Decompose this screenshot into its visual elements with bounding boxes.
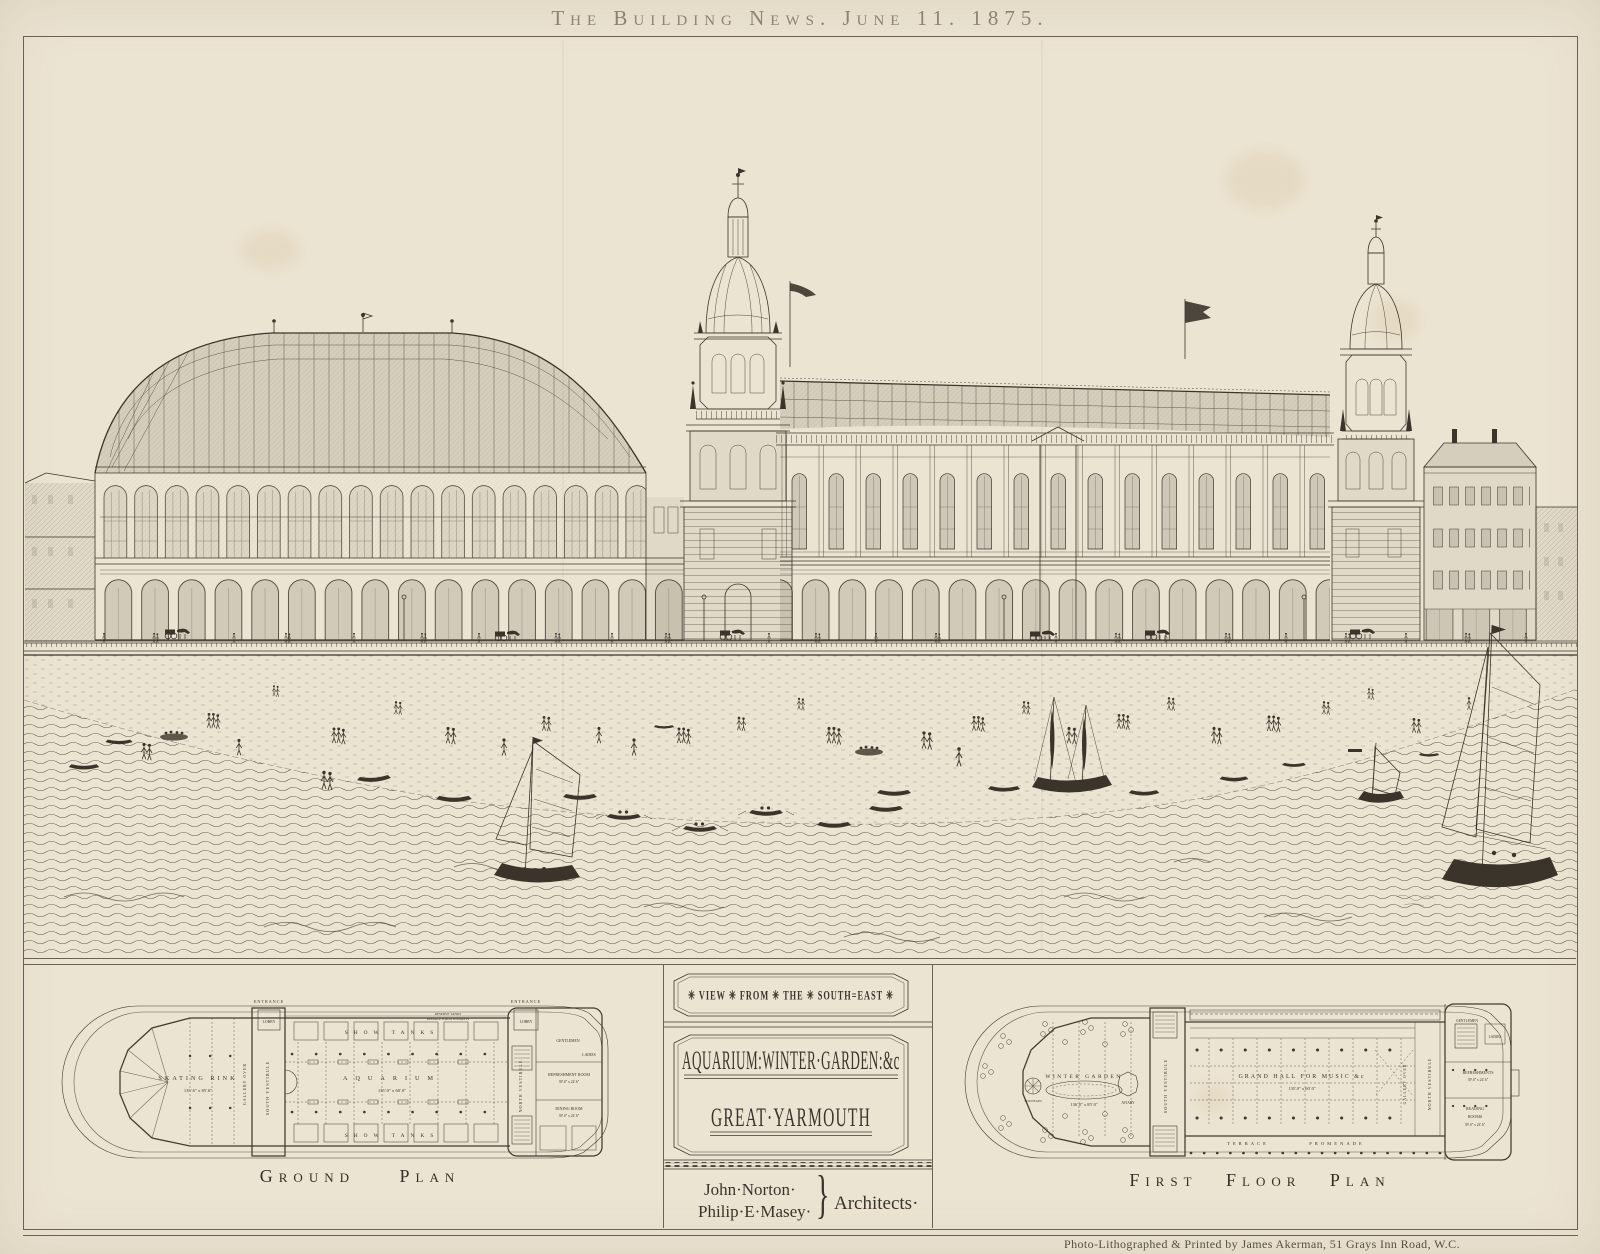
- svg-text:READING: READING: [1466, 1106, 1484, 1111]
- cartouche-right-rule: [932, 964, 933, 1228]
- main-hall: [776, 299, 1334, 640]
- svg-text:PASSAGE FOR ATTENDANTS: PASSAGE FOR ATTENDANTS: [427, 1017, 469, 1021]
- svg-text:39'.0" x 24'.6": 39'.0" x 24'.6": [559, 1080, 580, 1084]
- svg-text:REFRESHMENT ROOM: REFRESHMENT ROOM: [548, 1072, 590, 1077]
- svg-text:SOUTH VESTIBULE: SOUTH VESTIBULE: [265, 1061, 270, 1116]
- svg-text:ENTRANCE: ENTRANCE: [254, 999, 284, 1004]
- ground-plan-caption: Ground Plan: [230, 1166, 490, 1187]
- title-line1: AQUARIUM:WINTER·GARDEN:&c: [682, 1046, 900, 1075]
- svg-text:RESERVE TANKS: RESERVE TANKS: [435, 1012, 462, 1016]
- ground-plan-drawing: ENTRANCE ENTRANCE LOBBY LOBBY SKATING RI…: [40, 966, 620, 1171]
- distant-houses-left: [25, 473, 95, 641]
- svg-text:LADIES: LADIES: [582, 1053, 596, 1057]
- svg-text:ENTRANCE: ENTRANCE: [511, 999, 541, 1004]
- svg-text:NORTH VESTIBULE: NORTH VESTIBULE: [1427, 1058, 1432, 1111]
- svg-text:39'.0" x 24'.6": 39'.0" x 24'.6": [1465, 1123, 1486, 1127]
- architect-name-2: Philip·E·Masey·: [698, 1202, 811, 1221]
- svg-text:135'.0" x 60'.0": 135'.0" x 60'.0": [1288, 1086, 1315, 1091]
- lithograph-page: The Building News. June 11. 1875.: [0, 0, 1600, 1254]
- plate-border-bottom-line: [23, 1235, 1578, 1236]
- svg-text:AVIARY: AVIARY: [1121, 1101, 1135, 1105]
- architects-block: John·Norton· Philip·E·Masey· } Architect…: [698, 1166, 918, 1225]
- title-line2: GREAT·YARMOUTH: [711, 1103, 871, 1132]
- first-floor-right-rooms: [1445, 1004, 1511, 1160]
- ground-plan-labels: ENTRANCE ENTRANCE LOBBY LOBBY SKATING RI…: [158, 999, 595, 1139]
- svg-text:DINING ROOM: DINING ROOM: [555, 1106, 583, 1111]
- svg-text:AQUARIUM: AQUARIUM: [343, 1075, 441, 1082]
- svg-text:WINTER GARDEN: WINTER GARDEN: [1045, 1074, 1122, 1080]
- brace: }: [816, 1166, 829, 1225]
- svg-text:GALLERY OVER: GALLERY OVER: [242, 1063, 247, 1105]
- svg-text:TERRACE: TERRACE: [1227, 1141, 1269, 1146]
- engraving-view-from-south-east: [24, 37, 1577, 958]
- printer-imprint: Photo-Lithographed & Printed by James Ak…: [900, 1237, 1460, 1252]
- svg-text:GRAND HALL FOR MUSIC &c: GRAND HALL FOR MUSIC &c: [1238, 1074, 1365, 1080]
- winter-garden-pavilion: [95, 313, 684, 640]
- page-title: The Building News. June 11. 1875.: [0, 6, 1600, 31]
- svg-text:ROOMS: ROOMS: [1468, 1114, 1482, 1119]
- title-cartouche: ✳ VIEW ✳ FROM ✳ THE ✳ SOUTH=EAST ✳ AQUAR…: [664, 964, 932, 1228]
- svg-text:SOUTH VESTIBULE: SOUTH VESTIBULE: [1163, 1059, 1168, 1114]
- right-tower: [1328, 215, 1424, 640]
- right-wing: [1424, 429, 1577, 640]
- link-bay: [646, 497, 684, 640]
- first-floor-plan-drawing: WINTER GARDEN 136'.0" x 85'.0" FOUNTAIN …: [945, 966, 1525, 1171]
- svg-text:136'.0" x 85'.0": 136'.0" x 85'.0": [1070, 1102, 1097, 1107]
- svg-text:SHOW TANKS: SHOW TANKS: [345, 1133, 440, 1139]
- first-floor-plan-caption: First Floor Plan: [1080, 1170, 1440, 1191]
- architects-label: Architects·: [834, 1193, 918, 1214]
- svg-text:LOBBY: LOBBY: [263, 1020, 276, 1024]
- winter-garden-area: [981, 1020, 1138, 1145]
- cartouche-divider: [664, 1022, 932, 1027]
- svg-text:PROMENADE: PROMENADE: [1309, 1141, 1365, 1146]
- svg-text:GENTLEMEN: GENTLEMEN: [556, 1039, 579, 1043]
- svg-text:135'.0" x 60'.0": 135'.0" x 60'.0": [378, 1088, 406, 1093]
- svg-text:GALLERY OVER: GALLERY OVER: [1403, 1064, 1407, 1105]
- svg-text:39'.0" x 24'.6": 39'.0" x 24'.6": [559, 1114, 580, 1118]
- svg-text:LADIES: LADIES: [1489, 1035, 1502, 1039]
- central-tower: [680, 168, 796, 640]
- svg-text:REFRESHMENTS: REFRESHMENTS: [1462, 1070, 1493, 1075]
- svg-text:135'.6" x 85'.6": 135'.6" x 85'.6": [184, 1088, 212, 1093]
- first-floor-outline: [965, 1004, 1519, 1160]
- ground-plan-outline: [62, 1006, 608, 1158]
- view-caption-box: ✳ VIEW ✳ FROM ✳ THE ✳ SOUTH=EAST ✳: [674, 974, 908, 1016]
- svg-text:GENTLEMEN: GENTLEMEN: [1456, 1019, 1478, 1023]
- svg-text:LOBBY: LOBBY: [520, 1020, 533, 1024]
- architect-name-1: John·Norton·: [704, 1180, 796, 1199]
- svg-text:SHOW TANKS: SHOW TANKS: [345, 1030, 440, 1036]
- svg-text:SKATING RINK: SKATING RINK: [158, 1075, 237, 1082]
- flag-central: [790, 281, 816, 367]
- decorative-band: [664, 1160, 932, 1169]
- view-caption: ✳ VIEW ✳ FROM ✳ THE ✳ SOUTH=EAST ✳: [688, 989, 894, 1003]
- svg-text:39'.0" x 24'.6": 39'.0" x 24'.6": [1468, 1078, 1489, 1082]
- svg-text:NORTH VESTIBULE: NORTH VESTIBULE: [518, 1060, 523, 1113]
- main-title-box: AQUARIUM:WINTER·GARDEN:&c GREAT·YARMOUTH: [674, 1035, 908, 1155]
- svg-text:FOUNTAIN: FOUNTAIN: [1024, 1099, 1042, 1103]
